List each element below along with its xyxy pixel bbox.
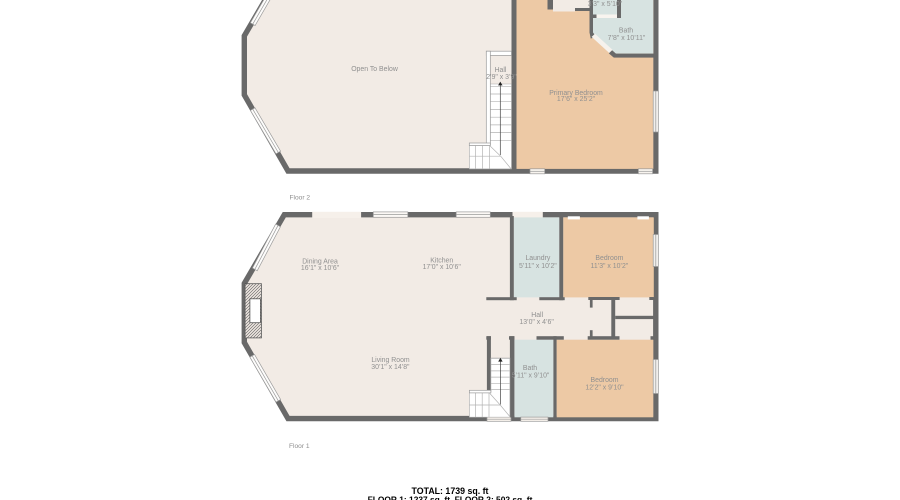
svg-text:7’8" x 10’11": 7’8" x 10’11" [608, 35, 646, 42]
svg-text:17’0" x 10’6": 17’0" x 10’6" [423, 264, 462, 271]
svg-text:3’3" x 5’10": 3’3" x 5’10" [588, 1, 623, 8]
svg-text:Bath: Bath [523, 365, 537, 372]
svg-text:13’0" x 4’6": 13’0" x 4’6" [519, 319, 554, 326]
svg-text:Hall: Hall [495, 67, 507, 74]
svg-text:Hall: Hall [531, 312, 543, 319]
svg-text:5’11" x 10’2": 5’11" x 10’2" [519, 263, 557, 270]
svg-text:16’1" x 10’6": 16’1" x 10’6" [301, 265, 340, 272]
svg-text:12’2" x 9’10": 12’2" x 9’10" [585, 385, 624, 392]
svg-text:Bath: Bath [619, 28, 633, 35]
svg-text:Living Room: Living Room [371, 357, 410, 364]
svg-text:17’6" x 25’2": 17’6" x 25’2" [557, 96, 596, 103]
svg-text:Bedroom: Bedroom [591, 377, 619, 384]
svg-text:Bedroom: Bedroom [595, 255, 623, 262]
svg-text:5’11" x 9’10": 5’11" x 9’10" [512, 373, 550, 380]
svg-text:Floor 2: Floor 2 [290, 195, 311, 202]
svg-text:11’3" x 10’2": 11’3" x 10’2" [591, 263, 629, 270]
svg-text:2’9" x 3’9": 2’9" x 3’9" [486, 74, 517, 81]
svg-text:FLOOR 1: 1237 sq. ft FLOOR 2:: FLOOR 1: 1237 sq. ft FLOOR 2: 502 sq. ft [368, 495, 533, 500]
svg-text:Open To Below: Open To Below [351, 66, 398, 73]
svg-text:Laundry: Laundry [525, 255, 550, 262]
svg-text:30’1" x 14’8": 30’1" x 14’8" [371, 364, 410, 371]
svg-text:Floor 1: Floor 1 [289, 443, 310, 450]
